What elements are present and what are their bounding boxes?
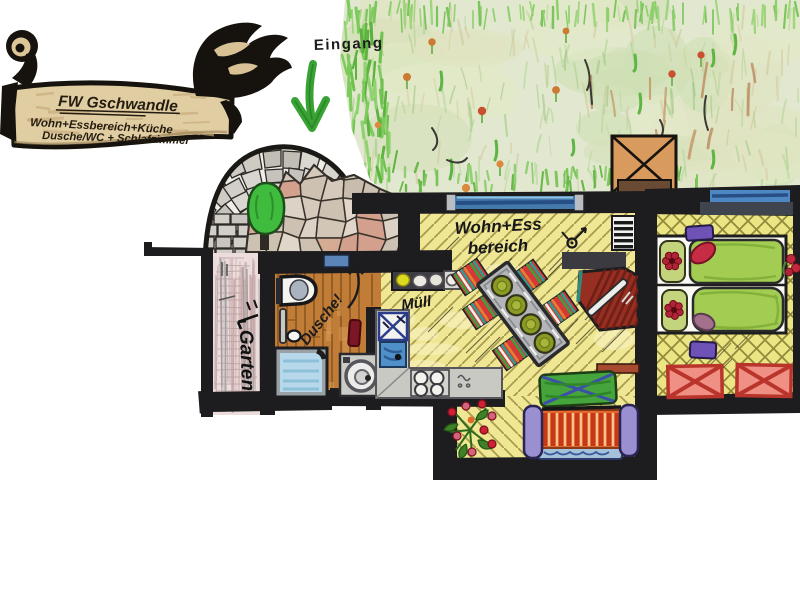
svg-text:Eingang: Eingang xyxy=(314,35,384,54)
svg-text:Garten: Garten xyxy=(235,329,258,391)
svg-text:bereich: bereich xyxy=(467,236,528,258)
